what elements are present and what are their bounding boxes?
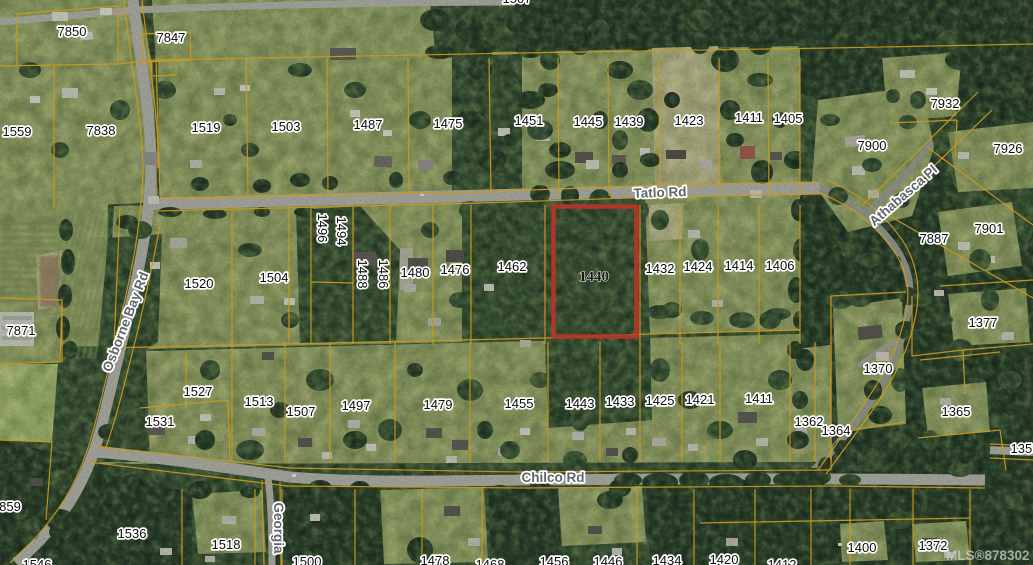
svg-text:1480: 1480 — [401, 265, 430, 280]
svg-text:1406: 1406 — [766, 258, 795, 273]
svg-text:1496: 1496 — [315, 214, 330, 243]
svg-text:1507: 1507 — [503, 0, 532, 6]
svg-text:1475: 1475 — [434, 116, 463, 131]
svg-text:1462: 1462 — [498, 259, 527, 274]
svg-text:1414: 1414 — [725, 258, 754, 273]
svg-text:1412: 1412 — [768, 557, 797, 565]
svg-text:1455: 1455 — [505, 396, 534, 411]
svg-text:1503: 1503 — [272, 119, 301, 134]
svg-text:1487: 1487 — [354, 117, 383, 132]
svg-text:1443: 1443 — [566, 396, 595, 411]
svg-text:7838: 7838 — [87, 123, 116, 138]
svg-text:1423: 1423 — [675, 113, 704, 128]
svg-text:1372: 1372 — [919, 538, 948, 553]
svg-text:1513: 1513 — [245, 394, 274, 409]
svg-text:1478: 1478 — [421, 553, 450, 565]
svg-text:7932: 7932 — [931, 96, 960, 111]
svg-text:1445: 1445 — [574, 114, 603, 129]
svg-text:7887: 7887 — [920, 231, 949, 246]
svg-text:1451: 1451 — [515, 113, 544, 128]
svg-text:1420: 1420 — [710, 552, 739, 565]
svg-text:1439: 1439 — [615, 114, 644, 129]
svg-text:1405: 1405 — [774, 111, 803, 126]
svg-text:1362: 1362 — [795, 414, 824, 429]
svg-text:1377: 1377 — [969, 315, 998, 330]
svg-text:1370: 1370 — [864, 361, 893, 376]
svg-text:Tatlo Rd: Tatlo Rd — [633, 184, 686, 201]
svg-text:1365: 1365 — [942, 404, 971, 419]
svg-text:1494: 1494 — [334, 217, 349, 246]
svg-text:1500: 1500 — [293, 554, 322, 565]
svg-text:1518: 1518 — [212, 537, 241, 552]
svg-text:1527: 1527 — [184, 384, 213, 399]
svg-text:1559: 1559 — [3, 124, 32, 139]
svg-text:1497: 1497 — [342, 398, 371, 413]
svg-text:1440: 1440 — [579, 269, 609, 285]
svg-text:1424: 1424 — [684, 259, 713, 274]
svg-text:1546: 1546 — [23, 557, 52, 565]
svg-text:1468: 1468 — [476, 557, 505, 565]
svg-text:7900: 7900 — [858, 138, 887, 153]
svg-text:1359: 1359 — [1011, 441, 1033, 456]
svg-text:1479: 1479 — [424, 397, 453, 412]
svg-text:1488: 1488 — [355, 260, 370, 289]
svg-text:1364: 1364 — [822, 423, 851, 438]
svg-text:1411: 1411 — [745, 391, 773, 406]
svg-text:1421: 1421 — [686, 392, 715, 407]
svg-text:Georgia: Georgia — [271, 502, 286, 554]
svg-text:Chilco Rd: Chilco Rd — [522, 470, 585, 485]
svg-text:1486: 1486 — [376, 260, 391, 289]
svg-text:1411: 1411 — [735, 110, 763, 125]
svg-text:1433: 1433 — [606, 394, 635, 409]
svg-text:1536: 1536 — [118, 526, 147, 541]
svg-text:1507: 1507 — [287, 404, 316, 419]
svg-text:7850: 7850 — [58, 24, 87, 39]
svg-text:1425: 1425 — [646, 393, 675, 408]
svg-text:1520: 1520 — [185, 276, 214, 291]
svg-text:7901: 7901 — [975, 221, 1004, 236]
svg-text:7871: 7871 — [7, 323, 36, 338]
svg-text:1400: 1400 — [848, 540, 877, 555]
svg-text:1432: 1432 — [646, 261, 675, 276]
svg-text:1531: 1531 — [146, 414, 175, 429]
svg-text:1446: 1446 — [594, 554, 623, 565]
svg-text:MLS®878302: MLS®878302 — [946, 548, 1030, 563]
svg-text:7926: 7926 — [994, 141, 1023, 156]
svg-text:1456: 1456 — [540, 554, 569, 565]
svg-text:7847: 7847 — [157, 30, 186, 45]
svg-text:1504: 1504 — [260, 270, 289, 285]
svg-text:1476: 1476 — [441, 262, 470, 277]
svg-text:1434: 1434 — [653, 553, 682, 565]
svg-text:1519: 1519 — [192, 120, 221, 135]
svg-text:859: 859 — [0, 499, 21, 514]
